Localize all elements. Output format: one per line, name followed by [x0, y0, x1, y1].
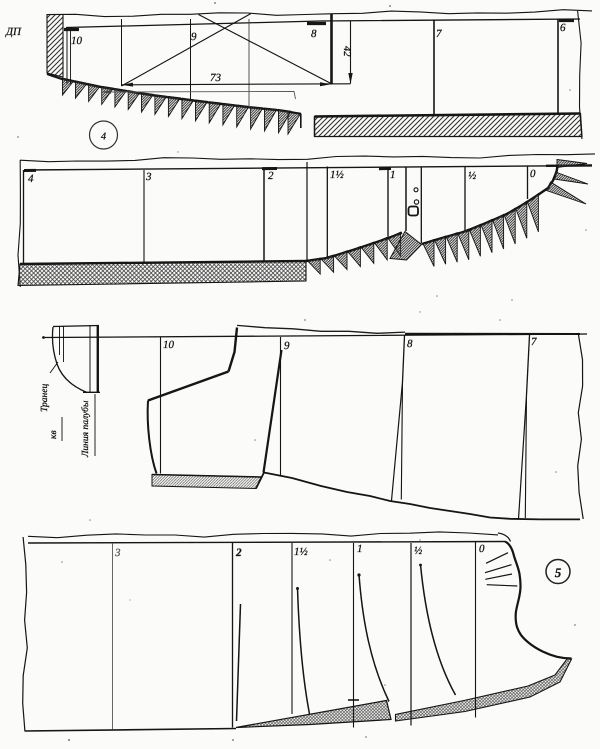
- svg-text:1½: 1½: [294, 546, 308, 558]
- svg-text:0: 0: [530, 168, 536, 180]
- svg-text:2: 2: [235, 547, 242, 559]
- svg-text:2: 2: [268, 170, 274, 182]
- svg-text:Транец: Транец: [40, 384, 50, 412]
- svg-text:9: 9: [284, 340, 290, 352]
- svg-text:42: 42: [341, 46, 352, 57]
- svg-text:4: 4: [101, 132, 107, 143]
- svg-text:7: 7: [531, 336, 537, 348]
- svg-text:кв: кв: [49, 430, 59, 439]
- svg-text:9: 9: [191, 31, 197, 43]
- svg-text:½: ½: [414, 545, 422, 557]
- svg-text:3: 3: [114, 547, 121, 559]
- svg-text:10: 10: [163, 339, 175, 351]
- svg-text:1½: 1½: [330, 169, 344, 181]
- svg-text:6: 6: [560, 22, 566, 34]
- svg-text:5: 5: [555, 565, 562, 580]
- svg-text:73: 73: [210, 72, 222, 84]
- svg-text:4: 4: [28, 173, 34, 185]
- svg-text:1: 1: [390, 169, 396, 181]
- svg-text:3: 3: [145, 171, 152, 183]
- svg-text:8: 8: [407, 338, 413, 350]
- svg-text:½: ½: [468, 170, 476, 182]
- svg-text:7: 7: [436, 28, 442, 40]
- svg-text:1: 1: [357, 543, 363, 555]
- svg-text:8: 8: [311, 28, 317, 40]
- svg-text:Линия палубы: Линия палубы: [81, 400, 91, 458]
- svg-text:10: 10: [71, 35, 83, 47]
- svg-text:ДП: ДП: [5, 26, 22, 38]
- svg-text:0: 0: [479, 543, 485, 555]
